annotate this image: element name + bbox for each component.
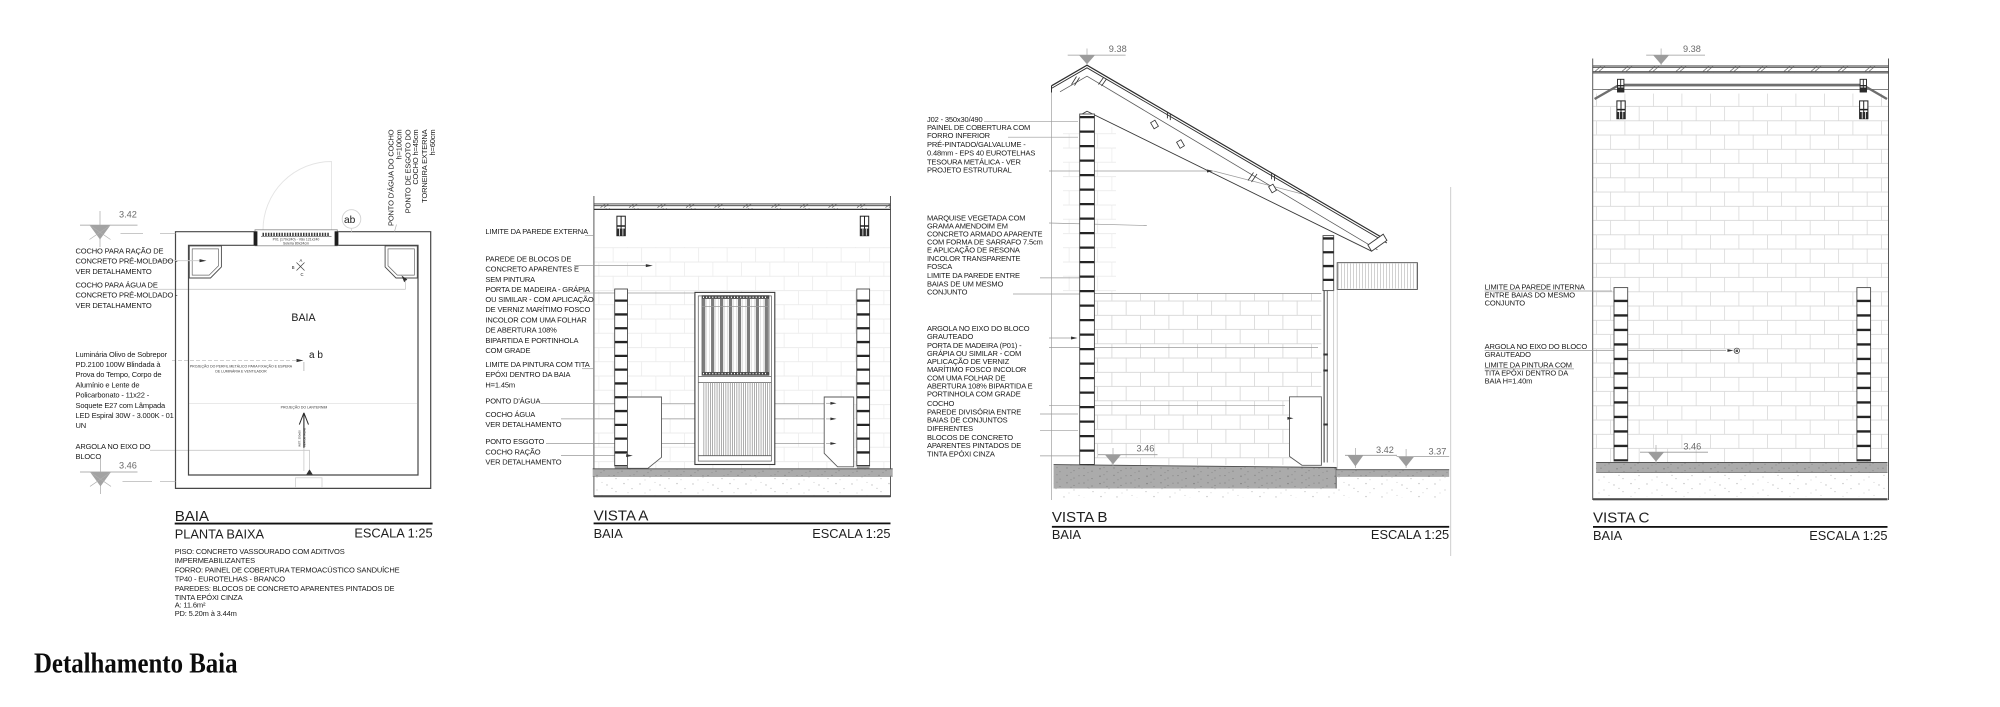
svg-text:9.38: 9.38 — [1109, 44, 1127, 54]
svg-text:Alumínio e Lente de: Alumínio e Lente de — [76, 380, 140, 389]
svg-text:IMPERMEABILIZANTES: IMPERMEABILIZANTES — [175, 556, 255, 565]
svg-text:PISO: CONCRETO VASSOURADO COM: PISO: CONCRETO VASSOURADO COM ADITIVOS — [175, 547, 345, 556]
svg-text:COM GRADE: COM GRADE — [485, 346, 530, 355]
svg-text:0.48mm - EPS 40 EUROTELHAS: 0.48mm - EPS 40 EUROTELHAS — [927, 149, 1035, 158]
svg-text:BAIA: BAIA — [1052, 527, 1082, 542]
svg-text:COCHO RAÇÃO: COCHO RAÇÃO — [485, 447, 540, 456]
svg-text:ESCALA 1:25: ESCALA 1:25 — [812, 526, 890, 541]
svg-text:CONCRETO APARENTES E: CONCRETO APARENTES E — [485, 265, 579, 274]
svg-text:VER DETALHAMENTO: VER DETALHAMENTO — [485, 420, 561, 429]
svg-text:BAIA: BAIA — [1593, 528, 1623, 543]
svg-text:FOSCA: FOSCA — [927, 262, 952, 271]
svg-text:BAIA H=1.40m: BAIA H=1.40m — [1485, 377, 1533, 386]
svg-text:BLOCO: BLOCO — [76, 452, 102, 461]
svg-text:GRAUTEADO: GRAUTEADO — [1485, 350, 1531, 359]
svg-text:PAREDES: BLOCOS DE CONCRETO AP: PAREDES: BLOCOS DE CONCRETO APARENTES PI… — [175, 584, 395, 593]
svg-text:DE ABERTURA 108%: DE ABERTURA 108% — [485, 326, 557, 335]
svg-text:CONCRETO PRÉ-MOLDADO -: CONCRETO PRÉ-MOLDADO - — [76, 291, 179, 300]
svg-text:PROJEÇÃO DO PERFIL METÁLICO PA: PROJEÇÃO DO PERFIL METÁLICO PARA FIXAÇÃO… — [190, 364, 293, 369]
svg-text:VISTA B: VISTA B — [1052, 509, 1108, 526]
svg-text:ESCALA 1:25: ESCALA 1:25 — [354, 526, 432, 541]
svg-text:ARGOLA NO EIXO DO: ARGOLA NO EIXO DO — [76, 442, 151, 451]
svg-text:B: B — [292, 265, 295, 270]
svg-text:3.46: 3.46 — [1683, 441, 1701, 451]
svg-text:DE LUMINÁRIA E VENTILADOR: DE LUMINÁRIA E VENTILADOR — [215, 369, 267, 373]
svg-text:LIMITE DA PINTURA COM TITA: LIMITE DA PINTURA COM TITA — [485, 360, 589, 369]
svg-text:INCOLOR COM UMA FOLHAR: INCOLOR COM UMA FOLHAR — [485, 315, 587, 324]
svg-text:DIFERENTES: DIFERENTES — [927, 424, 973, 433]
svg-text:COCHO: COCHO — [927, 399, 954, 408]
svg-text:PONTO ESGOTO: PONTO ESGOTO — [485, 437, 544, 446]
svg-text:BIPARTIDA E PORTINHOLA: BIPARTIDA E PORTINHOLA — [485, 336, 578, 345]
svg-text:COCHO h=45cm: COCHO h=45cm — [411, 130, 420, 185]
svg-text:CONCRETO PRÉ-MOLDADO -: CONCRETO PRÉ-MOLDADO - — [76, 257, 179, 266]
svg-text:BAIA: BAIA — [594, 526, 624, 541]
svg-text:FORRO: PAINEL DE COBERTURA TER: FORRO: PAINEL DE COBERTURA TERMOACÚSTICO… — [175, 565, 400, 574]
svg-text:EPÓXI DENTRO DA BAIA: EPÓXI DENTRO DA BAIA — [485, 370, 570, 379]
svg-text:CONJUNTO: CONJUNTO — [1485, 299, 1526, 308]
svg-text:Soleira 80x24cm: Soleira 80x24cm — [283, 241, 309, 245]
svg-text:PD.2100 100W Blindada à: PD.2100 100W Blindada à — [76, 360, 162, 369]
svg-text:VISTA A: VISTA A — [594, 507, 650, 524]
svg-text:PONTO D'ÁGUA: PONTO D'ÁGUA — [485, 396, 540, 405]
svg-text:BAIA: BAIA — [175, 508, 210, 525]
svg-text:9.38: 9.38 — [1683, 44, 1701, 54]
svg-text:PORTA DE MADEIRA - GRÁPIA: PORTA DE MADEIRA - GRÁPIA — [485, 285, 589, 294]
svg-text:UN: UN — [76, 421, 87, 430]
svg-text:3.42: 3.42 — [1376, 445, 1394, 455]
svg-text:h=60cm: h=60cm — [428, 130, 437, 156]
svg-text:COCHO PARA ÁGUA DE: COCHO PARA ÁGUA DE — [76, 280, 158, 289]
svg-text:3.42: 3.42 — [119, 210, 137, 220]
svg-text:PROJEÇÃO DO LANTERNIM: PROJEÇÃO DO LANTERNIM — [281, 405, 328, 410]
svg-text:PLANTA BAIXA: PLANTA BAIXA — [175, 526, 265, 541]
svg-text:OU SIMILAR - COM APLICAÇÃO: OU SIMILAR - COM APLICAÇÃO — [485, 295, 594, 304]
svg-text:PORTINHOLA COM GRADE: PORTINHOLA COM GRADE — [927, 390, 1021, 399]
svg-text:VER DETALHAMENTO: VER DETALHAMENTO — [76, 301, 152, 310]
svg-text:COCHO PARA RAÇÃO DE: COCHO PARA RAÇÃO DE — [76, 246, 164, 255]
svg-text:PROJETO ESTRUTURAL: PROJETO ESTRUTURAL — [927, 165, 1012, 174]
svg-text:BAIA: BAIA — [291, 312, 316, 324]
svg-text:PD: 5.20m à 3.44m: PD: 5.20m à 3.44m — [175, 609, 237, 618]
svg-text:CONJUNTO: CONJUNTO — [927, 287, 968, 296]
svg-text:DE VERNIZ MARÍTIMO FOSCO: DE VERNIZ MARÍTIMO FOSCO — [485, 305, 590, 314]
svg-text:ab: ab — [344, 215, 356, 226]
svg-text:ESCALA 1:25: ESCALA 1:25 — [1371, 527, 1449, 542]
svg-text:h=100cm: h=100cm — [395, 130, 404, 160]
svg-text:3.37: 3.37 — [1429, 446, 1447, 456]
svg-text:PAREDE DE BLOCOS DE: PAREDE DE BLOCOS DE — [485, 254, 571, 263]
svg-text:Luminária Olivo de Sobrepor: Luminária Olivo de Sobrepor — [76, 350, 168, 359]
svg-text:FORRO INFERIOR: FORRO INFERIOR — [927, 131, 991, 140]
svg-text:TP40 - EUROTELHAS - BRANCO: TP40 - EUROTELHAS - BRANCO — [175, 575, 286, 584]
svg-text:LIMITE DA PAREDE EXTERNA: LIMITE DA PAREDE EXTERNA — [485, 227, 588, 236]
svg-text:3.46: 3.46 — [119, 460, 137, 470]
svg-text:Policarbonato - 11x22 -: Policarbonato - 11x22 - — [76, 391, 150, 400]
svg-text:A: A — [300, 258, 303, 263]
svg-text:INST. 350x50: INST. 350x50 — [298, 430, 302, 447]
svg-text:PRÉ-PINTADO/GALVALUME -: PRÉ-PINTADO/GALVALUME - — [927, 140, 1026, 149]
svg-text:3.46: 3.46 — [1137, 443, 1155, 453]
svg-text:Detalhamento Baia: Detalhamento Baia — [34, 649, 238, 680]
svg-text:Soquete E27 com Lâmpada: Soquete E27 com Lâmpada — [76, 401, 167, 410]
svg-text:VER DETALHE: VER DETALHE — [303, 428, 307, 447]
svg-text:a b: a b — [309, 350, 323, 361]
svg-text:ESCALA 1:25: ESCALA 1:25 — [1809, 528, 1887, 543]
svg-text:VER DETALHAMENTO: VER DETALHAMENTO — [485, 458, 561, 467]
svg-text:SEM PINTURA: SEM PINTURA — [485, 275, 535, 284]
svg-text:H=1.45m: H=1.45m — [485, 380, 515, 389]
svg-text:C: C — [301, 272, 304, 277]
svg-text:VER DETALHAMENTO: VER DETALHAMENTO — [76, 267, 152, 276]
svg-text:GRAUTEADO: GRAUTEADO — [927, 332, 973, 341]
svg-text:COCHO ÁGUA: COCHO ÁGUA — [485, 410, 535, 419]
svg-text:TINTA EPÓXI CINZA: TINTA EPÓXI CINZA — [927, 449, 995, 458]
svg-text:Prova do Tempo, Corpo de: Prova do Tempo, Corpo de — [76, 370, 162, 379]
svg-text:LED Espiral 30W - 3.000K - 01: LED Espiral 30W - 3.000K - 01 — [76, 411, 174, 420]
svg-text:VISTA C: VISTA C — [1593, 510, 1650, 527]
